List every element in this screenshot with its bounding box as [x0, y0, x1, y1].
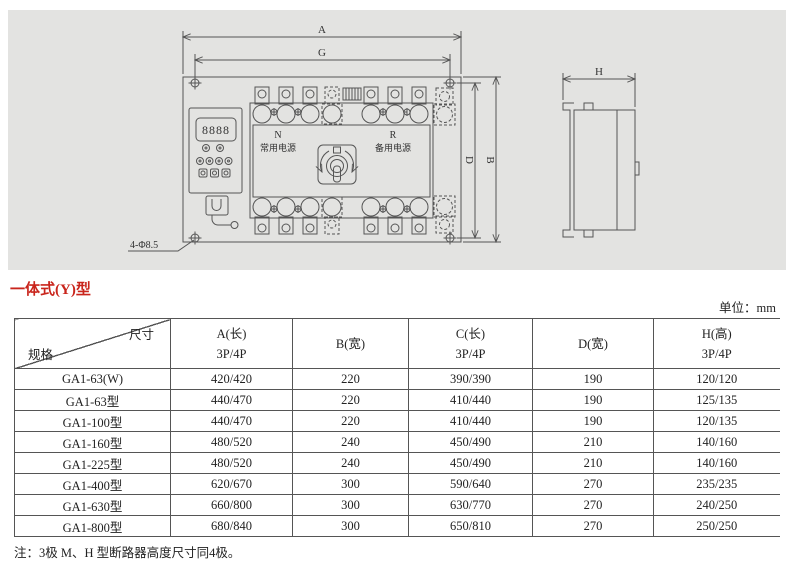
table-row: GA1-400型620/670300590/640270235/235: [15, 474, 780, 495]
dim-label-D: D: [463, 156, 475, 164]
corner-label-spec: 规格: [28, 344, 53, 363]
value-cell: 250/250: [654, 516, 780, 537]
model-cell: GA1-800型: [15, 516, 171, 537]
vent-grille-icon: [343, 88, 361, 100]
column-header-A: A(长) 3P/4P: [171, 319, 293, 369]
table-row: GA1-225型480/520240450/490210140/160: [15, 453, 780, 474]
dim-label-G: G: [318, 47, 326, 59]
value-cell: 680/840: [171, 516, 293, 537]
value-cell: 300: [293, 474, 409, 495]
table-row: GA1-100型440/470220410/440190120/135: [15, 411, 780, 432]
spec-table-body: GA1-63(W)420/420220390/390190120/120GA1-…: [15, 369, 780, 537]
value-cell: 440/470: [171, 411, 293, 432]
indicator-led-icon: [203, 145, 210, 152]
display-value: 8888: [202, 123, 230, 137]
mounting-bracket: [563, 103, 574, 237]
value-cell: 235/235: [654, 474, 780, 495]
value-cell: 270: [533, 516, 654, 537]
value-cell: 300: [293, 516, 409, 537]
dim-label-A: A: [318, 24, 326, 36]
reserve-source-code: R: [390, 130, 397, 141]
catalog-page: A G 4-Φ8.5: [0, 0, 786, 564]
value-cell: 650/810: [409, 516, 533, 537]
reserve-source-name: 备用电源: [375, 142, 411, 153]
value-cell: 120/135: [654, 411, 780, 432]
unit-label: 单位：mm: [719, 297, 776, 316]
value-cell: 480/520: [171, 432, 293, 453]
value-cell: 440/470: [171, 390, 293, 411]
bottom-terminals: [253, 197, 428, 234]
controller-unit: 8888: [189, 108, 242, 229]
value-cell: 220: [293, 390, 409, 411]
dimension-spec-table: 尺寸 规格 A(长) 3P/4P B(宽) C(长) 3P/4P D(宽): [14, 318, 780, 537]
column-header-B: B(宽): [293, 319, 409, 369]
model-cell: GA1-400型: [15, 474, 171, 495]
model-cell: GA1-100型: [15, 411, 171, 432]
side-body: [574, 110, 635, 230]
value-cell: 450/490: [409, 453, 533, 474]
holes-dimension-label: 4-Φ8.5: [130, 240, 158, 251]
connector-block: [206, 196, 228, 215]
value-cell: 140/160: [654, 453, 780, 474]
table-row: GA1-160型480/520240450/490210140/160: [15, 432, 780, 453]
ats-dimension-drawing: A G 4-Φ8.5: [8, 10, 786, 270]
normal-source-name: 常用电源: [260, 142, 296, 153]
value-cell: 660/800: [171, 495, 293, 516]
table-row: GA1-800型680/840300650/810270250/250: [15, 516, 780, 537]
value-cell: 270: [533, 474, 654, 495]
value-cell: 120/120: [654, 369, 780, 390]
value-cell: 210: [533, 453, 654, 474]
model-cell: GA1-63(W): [15, 369, 171, 390]
value-cell: 140/160: [654, 432, 780, 453]
model-cell: GA1-63型: [15, 390, 171, 411]
top-terminals: [253, 87, 428, 124]
model-cell: GA1-160型: [15, 432, 171, 453]
value-cell: 480/520: [171, 453, 293, 474]
value-cell: 190: [533, 390, 654, 411]
table-row: GA1-63(W)420/420220390/390190120/120: [15, 369, 780, 390]
button-row-icons: [197, 158, 233, 178]
technical-drawing-panel: A G 4-Φ8.5: [8, 10, 786, 270]
side-view: H: [563, 66, 639, 237]
table-row: GA1-63型440/470220410/440190125/135: [15, 390, 780, 411]
header-row: 尺寸 规格 A(长) 3P/4P B(宽) C(长) 3P/4P D(宽): [15, 319, 780, 369]
value-cell: 125/135: [654, 390, 780, 411]
value-cell: 630/770: [409, 495, 533, 516]
value-cell: 220: [293, 369, 409, 390]
indicator-led-icon: [217, 145, 224, 152]
column-header-C: C(长) 3P/4P: [409, 319, 533, 369]
footnote: 注：3极 M、H 型断路器高度尺寸同4极。: [14, 542, 240, 561]
model-cell: GA1-630型: [15, 495, 171, 516]
column-header-D: D(宽): [533, 319, 654, 369]
value-cell: 590/640: [409, 474, 533, 495]
dim-label-H: H: [595, 66, 603, 78]
corner-header-cell: 尺寸 规格: [15, 319, 171, 369]
front-view: A G 4-Φ8.5: [128, 24, 501, 251]
section-title: 一体式(Y)型: [10, 278, 91, 299]
value-cell: 190: [533, 411, 654, 432]
value-cell: 210: [533, 432, 654, 453]
value-cell: 220: [293, 411, 409, 432]
value-cell: 190: [533, 369, 654, 390]
value-cell: 240: [293, 453, 409, 474]
normal-source-code: N: [274, 130, 281, 141]
value-cell: 420/420: [171, 369, 293, 390]
value-cell: 390/390: [409, 369, 533, 390]
value-cell: 300: [293, 495, 409, 516]
value-cell: 410/440: [409, 411, 533, 432]
value-cell: 240/250: [654, 495, 780, 516]
table-row: GA1-630型660/800300630/770270240/250: [15, 495, 780, 516]
switch-body: N 常用电源 R 备用电源: [250, 87, 455, 234]
value-cell: 410/440: [409, 390, 533, 411]
column-header-H: H(高) 3P/4P: [654, 319, 780, 369]
value-cell: 450/490: [409, 432, 533, 453]
value-cell: 270: [533, 495, 654, 516]
dim-label-B: B: [484, 156, 496, 163]
corner-label-dimension: 尺寸: [129, 324, 154, 343]
control-wire: [212, 215, 231, 225]
model-cell: GA1-225型: [15, 453, 171, 474]
rotary-handle-icon: [318, 145, 356, 184]
fourth-pole-dashed: [434, 88, 455, 233]
value-cell: 620/670: [171, 474, 293, 495]
value-cell: 240: [293, 432, 409, 453]
